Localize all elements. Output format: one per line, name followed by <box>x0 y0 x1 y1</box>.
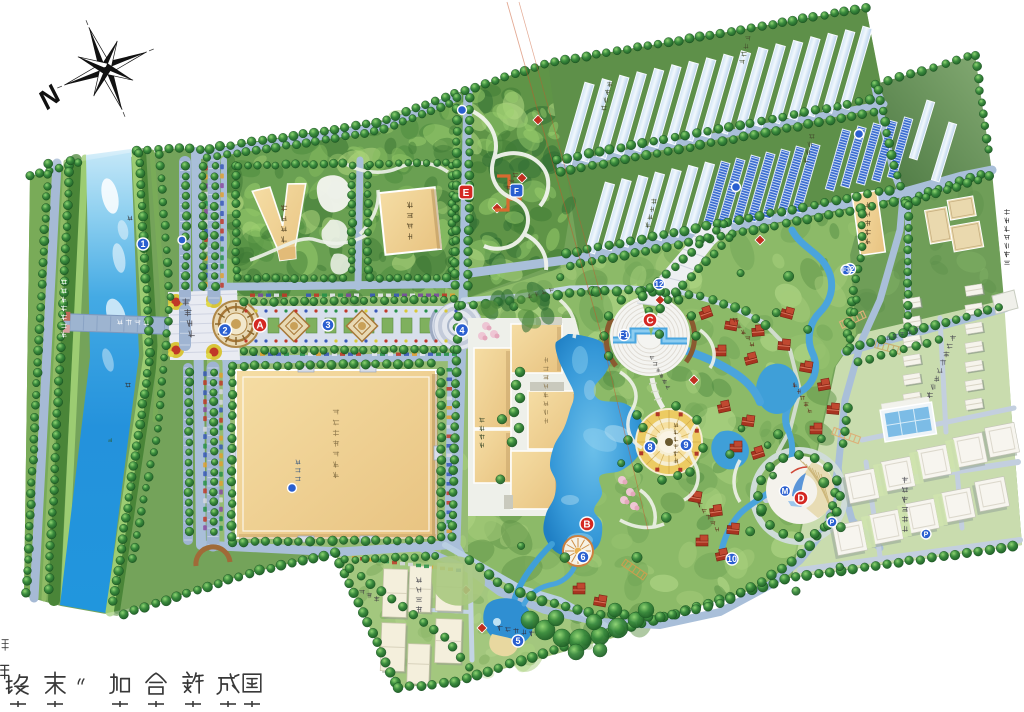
svg-text:F: F <box>514 187 519 196</box>
svg-text:F1: F1 <box>619 331 629 340</box>
svg-text:F3: F3 <box>842 268 850 275</box>
svg-text:P: P <box>924 532 929 539</box>
svg-text:M: M <box>782 487 789 496</box>
svg-text:9: 9 <box>683 440 688 450</box>
svg-text:A: A <box>256 321 263 332</box>
svg-text:P: P <box>830 520 835 527</box>
svg-text:E: E <box>463 188 470 199</box>
svg-text:10: 10 <box>727 554 737 564</box>
svg-text:D: D <box>797 494 804 505</box>
svg-text:B: B <box>583 520 590 531</box>
svg-text:2: 2 <box>222 325 227 335</box>
svg-text:1: 1 <box>140 239 145 249</box>
svg-text:3: 3 <box>325 320 330 330</box>
svg-text:6: 6 <box>580 552 585 562</box>
svg-text:12: 12 <box>655 280 664 289</box>
svg-text:8: 8 <box>647 442 652 452</box>
svg-text:5: 5 <box>515 636 520 646</box>
svg-text:4: 4 <box>459 325 464 335</box>
svg-text:C: C <box>646 316 653 327</box>
